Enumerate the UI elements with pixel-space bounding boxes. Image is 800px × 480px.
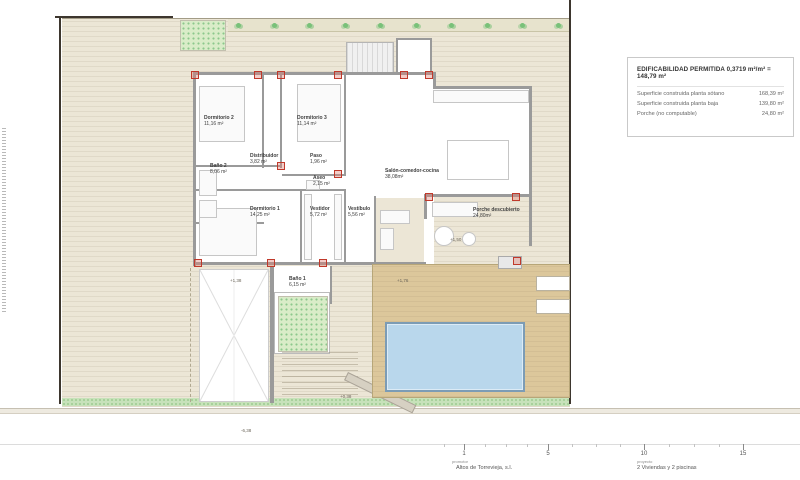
room-area: 14,25 m²: [250, 212, 280, 218]
scale-minor-tick: [485, 444, 486, 447]
sun-lounger: [536, 299, 570, 314]
room-name: Distribuidor: [250, 153, 278, 159]
room-label-vestidor: Vestidor 5,72 m²: [310, 206, 330, 219]
proyecto-label: proyecto: [637, 459, 652, 464]
pillar-marker: [334, 170, 342, 178]
swimming-pool: [385, 322, 525, 392]
wall: [433, 86, 531, 89]
wall: [196, 189, 346, 191]
hedge-strip: [228, 19, 569, 32]
plant-icon: [556, 23, 561, 28]
room-label-vestibulo: Vestíbulo 5,56 m²: [348, 206, 370, 219]
room-name: Porche descubierto: [473, 207, 520, 213]
room-name: Aseo: [313, 175, 325, 181]
pillar-marker: [191, 71, 199, 79]
wall: [344, 191, 346, 263]
scale-number: 10: [641, 451, 648, 457]
promotor-label: promotor: [452, 459, 468, 464]
terrace-sofa: [380, 210, 410, 224]
plant-icon: [236, 23, 241, 28]
wardrobe: [334, 194, 342, 260]
scale-minor-tick: [596, 444, 597, 447]
scale-number: 1: [462, 451, 465, 457]
level-annotation: +1,50: [450, 237, 461, 242]
plant-icon: [520, 23, 525, 28]
bath2-fixture: [199, 200, 217, 218]
pillar-marker: [194, 259, 202, 267]
plant-icon: [378, 23, 383, 28]
legend-row-label: Superficie construida planta sótano: [637, 91, 724, 97]
plant-icon: [485, 23, 490, 28]
margin-micro-text: [2, 128, 6, 313]
wall: [344, 75, 346, 176]
driveway: [199, 269, 269, 402]
plant-icon: [307, 23, 312, 28]
pillar-marker: [254, 71, 262, 79]
scale-minor-tick: [669, 444, 670, 447]
room-area: 38,08m²: [385, 174, 439, 180]
legend-title: EDIFICABILIDAD PERMITIDA 0,3719 m²/m² = …: [637, 66, 784, 80]
level-annotation: +0,38: [340, 394, 351, 399]
wall: [300, 191, 302, 263]
room-area: 5,56 m²: [348, 212, 370, 218]
sidewalk: [0, 408, 800, 414]
room-label-porche: Porche descubierto 24,80m²: [473, 207, 520, 220]
room-label-bano2: Baño 2 8,06 m²: [210, 163, 227, 176]
room-name: Baño 2: [210, 163, 227, 169]
wall: [193, 72, 196, 266]
scale-minor-tick: [694, 444, 695, 447]
roof-annex: [396, 38, 432, 75]
scale-number: 5: [546, 451, 549, 457]
stair-hatch: [346, 42, 394, 74]
legend-row-value: 24,80 m²: [762, 111, 784, 117]
room-area: 2,15 m²: [313, 181, 330, 187]
dimension-chain: [190, 268, 192, 402]
room-name: Dormitorio 1: [250, 206, 280, 212]
pillar-marker: [425, 71, 433, 79]
room-area: 5,72 m²: [310, 212, 330, 218]
porch-table: [462, 232, 476, 246]
level-annotation: +1,76: [397, 278, 408, 283]
wall: [280, 75, 282, 168]
scale-minor-tick: [572, 444, 573, 447]
floor-plan-sheet: Dormitorio 2 11,16 m² Dormitorio 3 11,14…: [0, 0, 800, 480]
pillar-marker: [513, 257, 521, 265]
gate-swing-lines: [200, 270, 268, 401]
wall: [529, 86, 532, 197]
plant-icon: [414, 23, 419, 28]
proyecto-name: 2 Viviendas y 2 piscinas: [637, 465, 697, 471]
room-area: 11,14 m²: [297, 121, 327, 127]
room-name: Dormitorio 2: [204, 115, 234, 121]
boundary-line-top-left: [55, 16, 173, 18]
sun-lounger: [536, 276, 570, 291]
room-label-salon: Salón-comedor-cocina 38,08m²: [385, 168, 439, 181]
grass-strip: [62, 398, 570, 406]
porch-bench: [432, 202, 478, 217]
pillar-marker: [334, 71, 342, 79]
legend-row-label: Porche (no computable): [637, 111, 697, 117]
room-label-dormitorio2: Dormitorio 2 11,16 m²: [204, 115, 234, 128]
room-name: Baño 1: [289, 276, 306, 282]
room-area: 6,15 m²: [289, 282, 306, 288]
level-annotation: -6,38: [241, 428, 251, 433]
pillar-marker: [400, 71, 408, 79]
legend-divider: [637, 86, 784, 87]
wardrobe: [304, 194, 312, 260]
room-area: 1,96 m²: [310, 159, 327, 165]
room-name: Paso: [310, 153, 322, 159]
pillar-marker: [425, 193, 433, 201]
room-name: Dormitorio 3: [297, 115, 327, 121]
scale-minor-tick: [527, 444, 528, 447]
legend-row: Superficie construida planta baja 139,80…: [637, 101, 784, 107]
level-annotation: +1,38: [230, 278, 241, 283]
scale-tick: [743, 444, 744, 450]
room-name: Vestidor: [310, 206, 330, 212]
boundary-line-left: [59, 16, 61, 404]
legend-row-value: 139,80 m²: [759, 101, 784, 107]
room-name: Salón-comedor-cocina: [385, 168, 439, 174]
room-label-aseo: Aseo 2,15 m²: [313, 175, 330, 188]
pillar-marker: [512, 193, 520, 201]
legend-row-value: 168,39 m²: [759, 91, 784, 97]
room-label-dormitorio3: Dormitorio 3 11,14 m²: [297, 115, 327, 128]
legend-row: Superficie construida planta sótano 168,…: [637, 91, 784, 97]
dining-table: [447, 140, 509, 180]
pillar-marker: [277, 71, 285, 79]
scale-number: 15: [740, 451, 747, 457]
pillar-marker: [319, 259, 327, 267]
room-area: 8,06 m²: [210, 169, 227, 175]
room-area: 24,80m²: [473, 213, 520, 219]
plant-icon: [272, 23, 277, 28]
room-name: Vestíbulo: [348, 206, 370, 212]
plant-icon: [343, 23, 348, 28]
titleblock-line: [0, 444, 800, 445]
room-area: 11,16 m²: [204, 121, 234, 127]
scale-minor-tick: [506, 444, 507, 447]
terrace-sofa: [380, 228, 394, 250]
kitchen-counter: [433, 90, 529, 103]
room-label-distribuidor: Distribuidor 3,82 m²: [250, 153, 278, 166]
pillar-marker: [267, 259, 275, 267]
legend-row-label: Superficie construida planta baja: [637, 101, 718, 107]
wall: [374, 196, 376, 263]
bed-dormitorio2: [199, 86, 245, 142]
scale-minor-tick: [719, 444, 720, 447]
room-label-paso: Paso 1,96 m²: [310, 153, 327, 166]
room-label-dormitorio1: Dormitorio 1 14,25 m²: [250, 206, 280, 219]
plant-icon: [449, 23, 454, 28]
bed-dormitorio3: [297, 84, 341, 142]
wall: [529, 194, 532, 246]
porch-table: [434, 226, 454, 246]
scale-tick: [464, 444, 465, 450]
promotor-name: Altos de Torrevieja, s.l.: [456, 465, 512, 471]
wall: [330, 266, 332, 304]
scale-tick: [548, 444, 549, 450]
room-label-bano1: Baño 1 6,15 m²: [289, 276, 306, 289]
garden-patch: [180, 20, 226, 51]
scale-minor-tick: [620, 444, 621, 447]
room-area: 3,82 m²: [250, 159, 278, 165]
legend-row: Porche (no computable) 24,80 m²: [637, 111, 784, 117]
legend-box: EDIFICABILIDAD PERMITIDA 0,3719 m²/m² = …: [627, 57, 794, 137]
scale-minor-tick: [444, 444, 445, 447]
scale-tick: [644, 444, 645, 450]
tree-icon: [278, 296, 328, 352]
